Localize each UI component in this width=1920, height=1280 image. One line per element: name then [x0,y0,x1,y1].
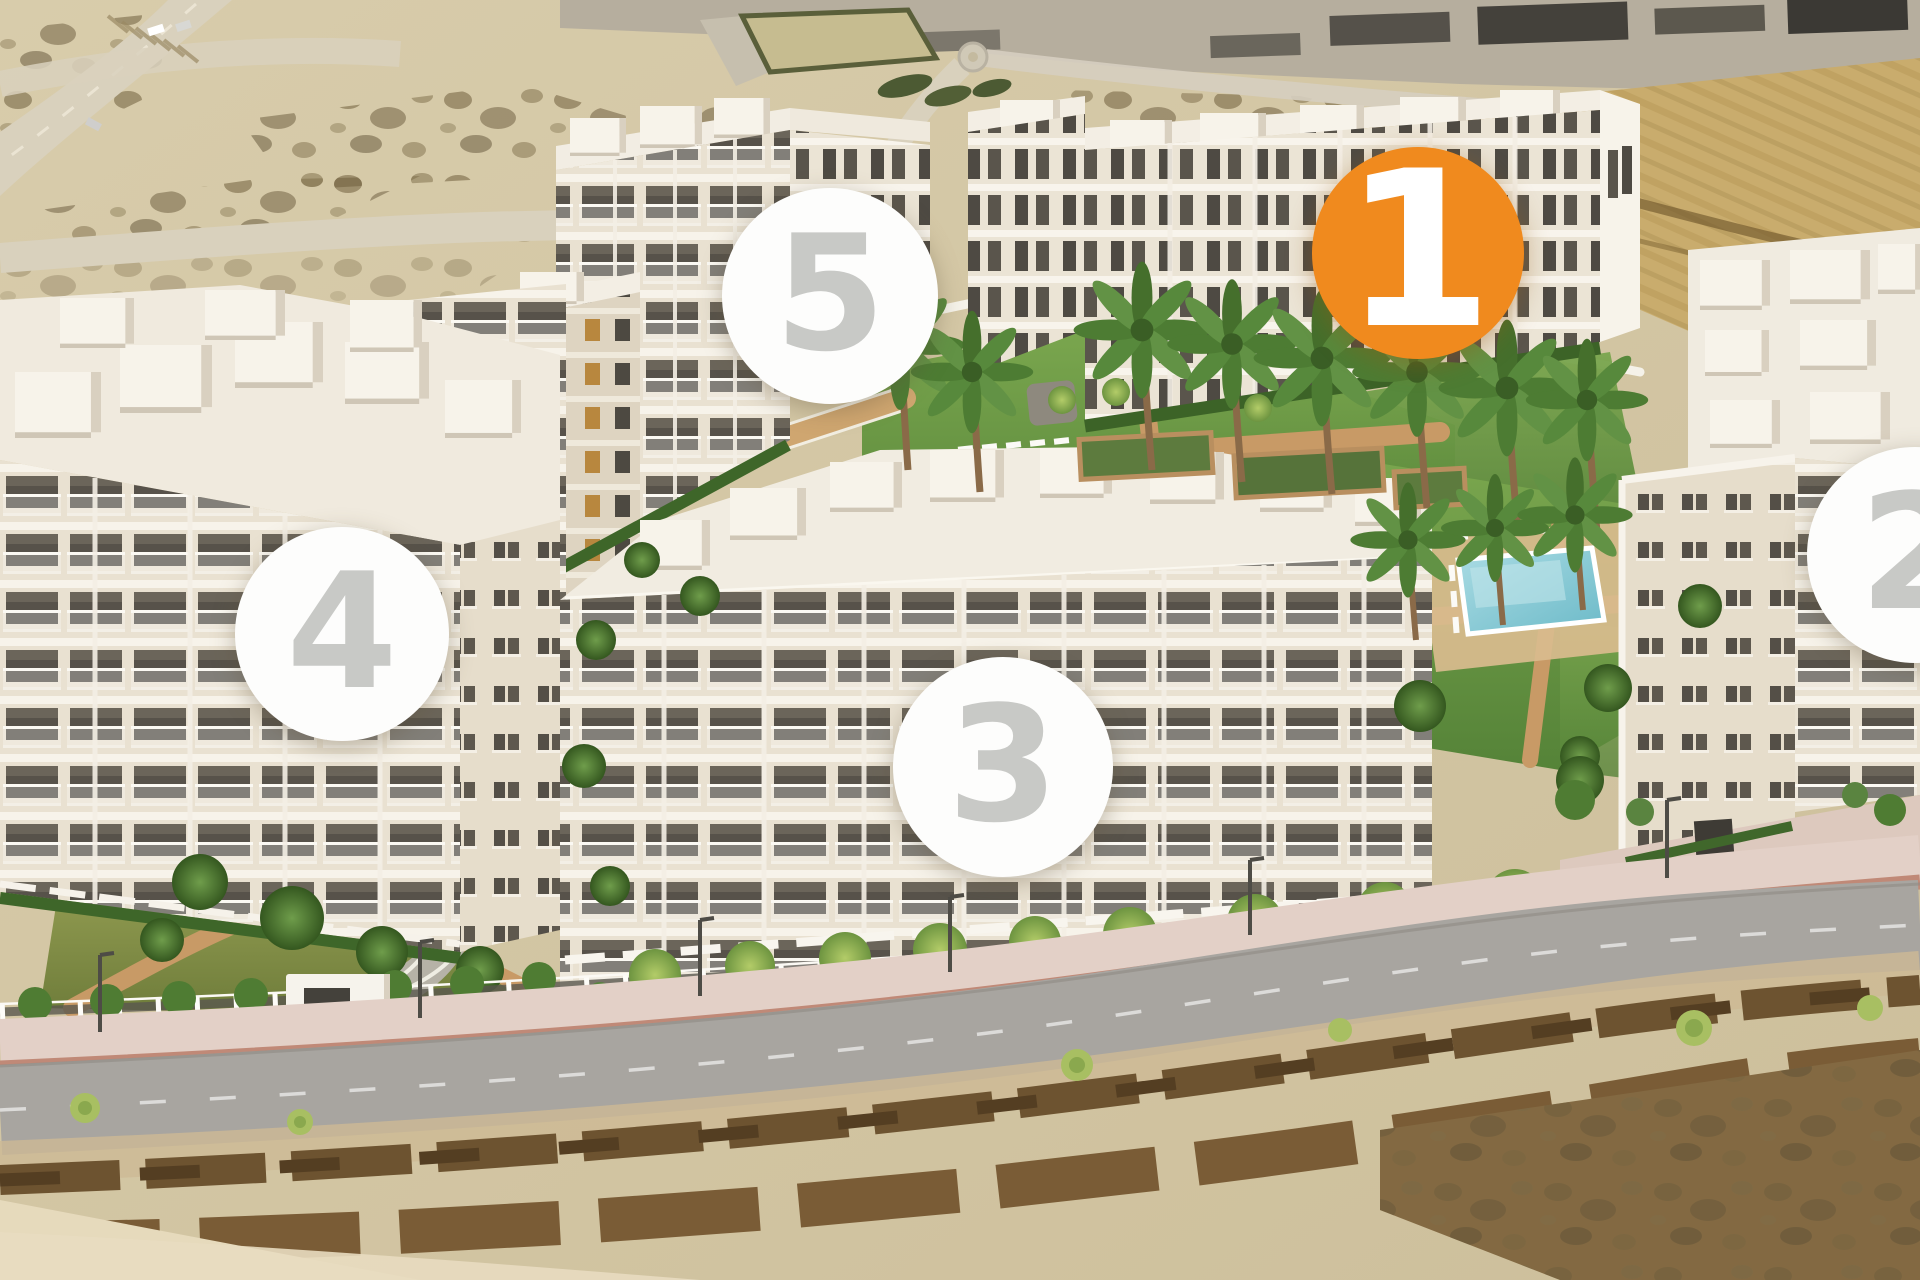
marker-number: 1 [1343,143,1493,359]
marker-layer: 12345 [0,0,1920,1280]
building-marker-3[interactable]: 3 [893,657,1113,877]
marker-number: 3 [947,685,1058,845]
building-marker-1[interactable]: 1 [1312,147,1524,359]
building-marker-5[interactable]: 5 [722,188,938,404]
building-marker-4[interactable]: 4 [235,527,449,741]
marker-number: 4 [286,552,397,712]
marker-number: 5 [774,214,885,374]
building-marker-2[interactable]: 2 [1807,447,1920,663]
site-plan-image: 12345 [0,0,1920,1280]
marker-number: 2 [1859,473,1920,633]
